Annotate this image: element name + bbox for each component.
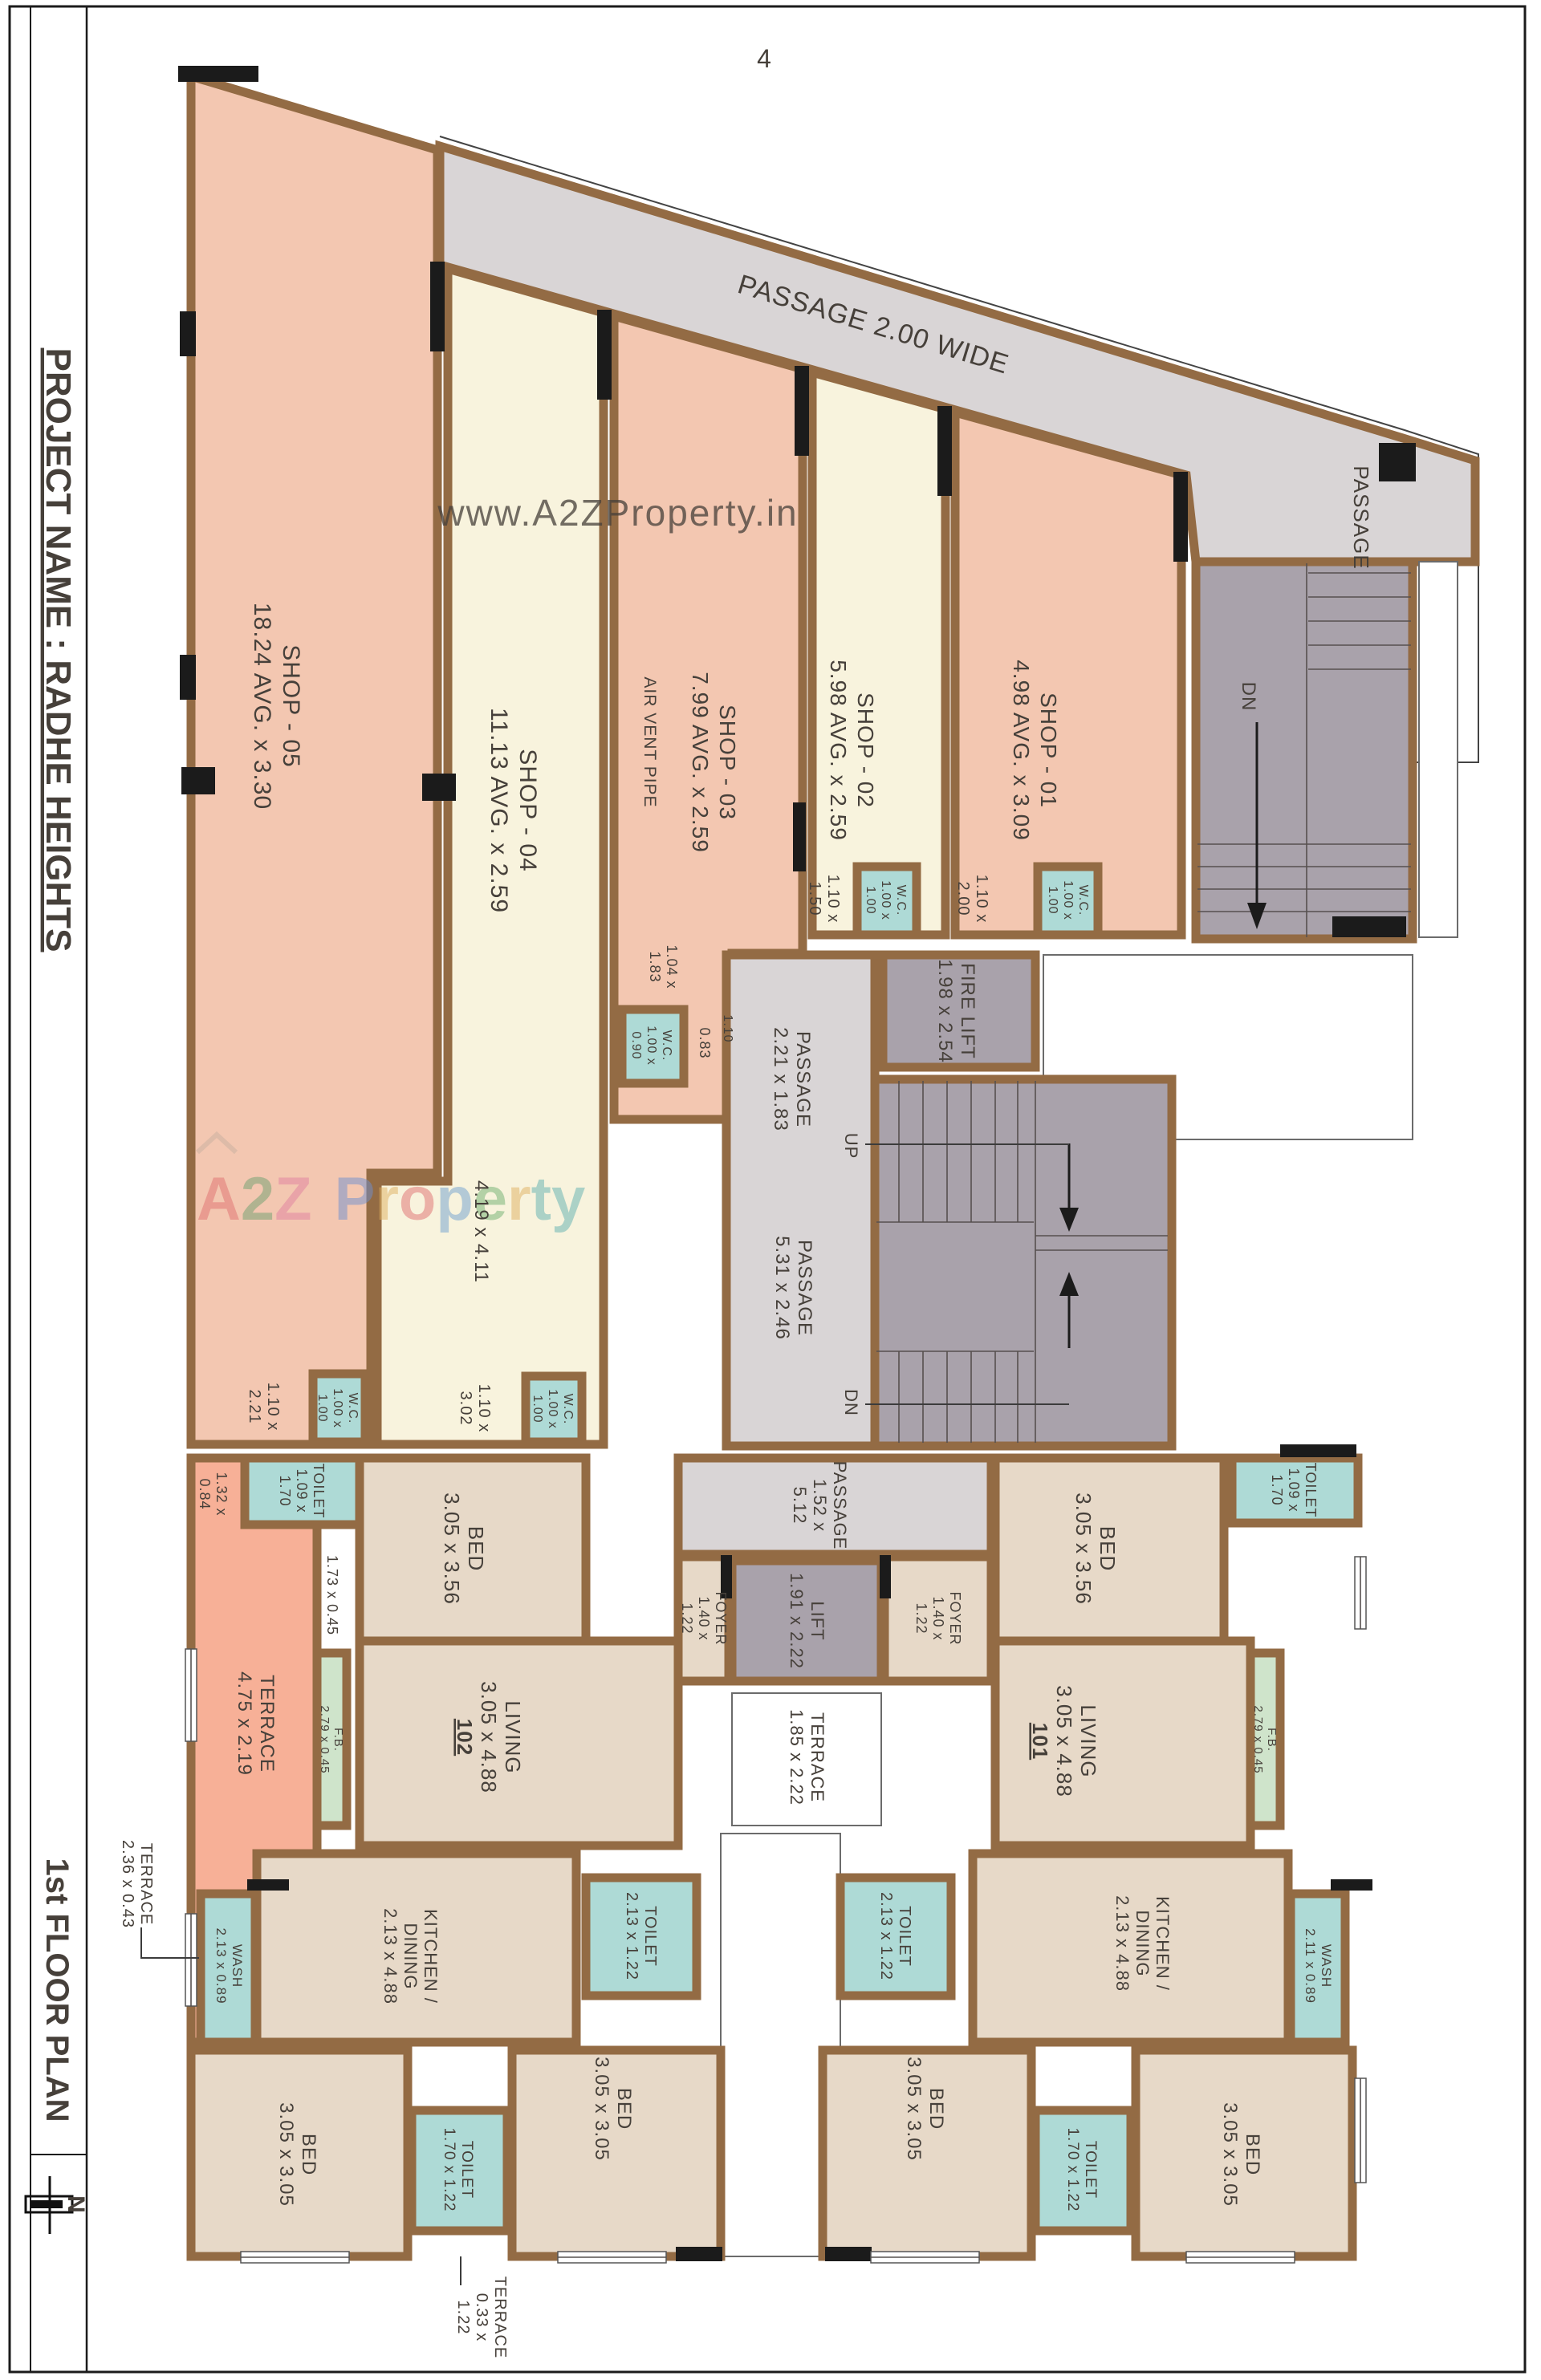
wall-accent — [1280, 1444, 1356, 1457]
shop03-wc-label: W.C.1.00 x0.90 — [629, 1026, 673, 1066]
terrace-center-label: TERRACE1.85 x 2.22 — [787, 1709, 827, 1805]
dim-0-83: 0.83 — [697, 1027, 713, 1058]
page-number: 4 — [757, 44, 771, 73]
passage-531-label: PASSAGE5.31 x 2.46 — [771, 1236, 815, 1340]
shop01-door-dim: 1.10 x2.00 — [954, 875, 990, 923]
stair-side-strip — [1419, 562, 1458, 937]
plan-title: 1st FLOOR PLAN — [39, 1858, 75, 2122]
staircase-central — [875, 1079, 1172, 1446]
shop04-wc-label: W.C.1.00 x1.00 — [531, 1389, 575, 1429]
wall-accent — [1332, 916, 1406, 937]
terrace-bottom-note: TERRACE0.33 x1.22 — [454, 2276, 509, 2359]
toilet-101-mid — [840, 1878, 951, 1996]
shop02-wc-label: W.C.1.00 x1.00 — [864, 880, 908, 920]
wall-accent — [178, 66, 258, 82]
wall-accent — [1331, 1879, 1372, 1891]
door-jamb — [597, 310, 612, 400]
floor-plan-drawing: PROJECT NAME : RADHE HEIGHTS 1st FLOOR P… — [0, 0, 1541, 2380]
bed-102-bottom-mid — [512, 2050, 721, 2256]
shop03-door-dim: 1.04 x1.83 — [647, 944, 680, 989]
passage-221-label: PASSAGE2.21 x 1.83 — [770, 1027, 814, 1131]
wall-accent — [825, 2247, 872, 2261]
watermark-url: www.A2ZProperty.in — [437, 492, 798, 534]
floor-plan-sheet: PROJECT NAME : RADHE HEIGHTS 1st FLOOR P… — [0, 0, 1541, 2380]
door-jamb — [795, 366, 809, 456]
door-jamb — [880, 1555, 891, 1598]
shop02-door-dim: 1.10 x1.50 — [806, 875, 842, 923]
shop05-wc-label: W.C.1.00 x1.00 — [315, 1388, 360, 1428]
passage-vertical — [726, 955, 875, 1446]
fire-lift-label: FIRE LIFT1.98 x 2.54 — [934, 959, 978, 1063]
shop01-wc-label: W.C.1.00 x1.00 — [1046, 880, 1090, 920]
door-jamb — [793, 802, 806, 871]
air-vent-pipe-label: AIR VENT PIPE — [640, 676, 659, 807]
dn-label: DN — [841, 1389, 861, 1416]
door-jamb — [430, 262, 445, 351]
shop-01-room — [955, 412, 1181, 935]
wall-accent — [181, 767, 215, 794]
dim-173-045: 1.73 x 0.45 — [324, 1555, 340, 1635]
shop05-door-dim: 1.10 x2.21 — [246, 1383, 282, 1431]
bed-101-bottom-mid — [823, 2050, 1031, 2256]
north-label: N — [63, 2195, 89, 2213]
toilet-102-mid — [586, 1878, 697, 1996]
wall-accent — [180, 311, 196, 356]
door-jamb — [937, 406, 952, 496]
shop04-inner-dim: 4.19 x 4.11 — [470, 1180, 492, 1283]
dim-132-084: 1.32 x0.84 — [197, 1472, 230, 1516]
svg-text:A2ZProperty: A2ZProperty — [197, 1165, 585, 1233]
dn-top-label: DN — [1238, 682, 1259, 712]
door-jamb — [1173, 472, 1188, 562]
dim-1-10: 1.10 — [721, 1014, 734, 1042]
passage-right-label: PASSAGE — [1349, 465, 1373, 569]
terrace-102-label: TERRACE4.75 x 2.19 — [234, 1671, 278, 1776]
staircase-top-right — [1196, 562, 1413, 939]
wall-accent — [676, 2247, 722, 2261]
wall-accent — [180, 655, 196, 700]
terrace-left-note: TERRACE2.36 x 0.43 — [119, 1840, 155, 1928]
wall-accent — [1379, 443, 1416, 481]
shop-02-room — [812, 372, 945, 935]
shop04-door-dim: 1.10 x3.02 — [457, 1384, 493, 1432]
up-label: UP — [841, 1133, 861, 1160]
wall-accent — [422, 774, 456, 801]
project-name: PROJECT NAME : RADHE HEIGHTS — [39, 348, 78, 952]
wall-accent — [247, 1879, 289, 1891]
